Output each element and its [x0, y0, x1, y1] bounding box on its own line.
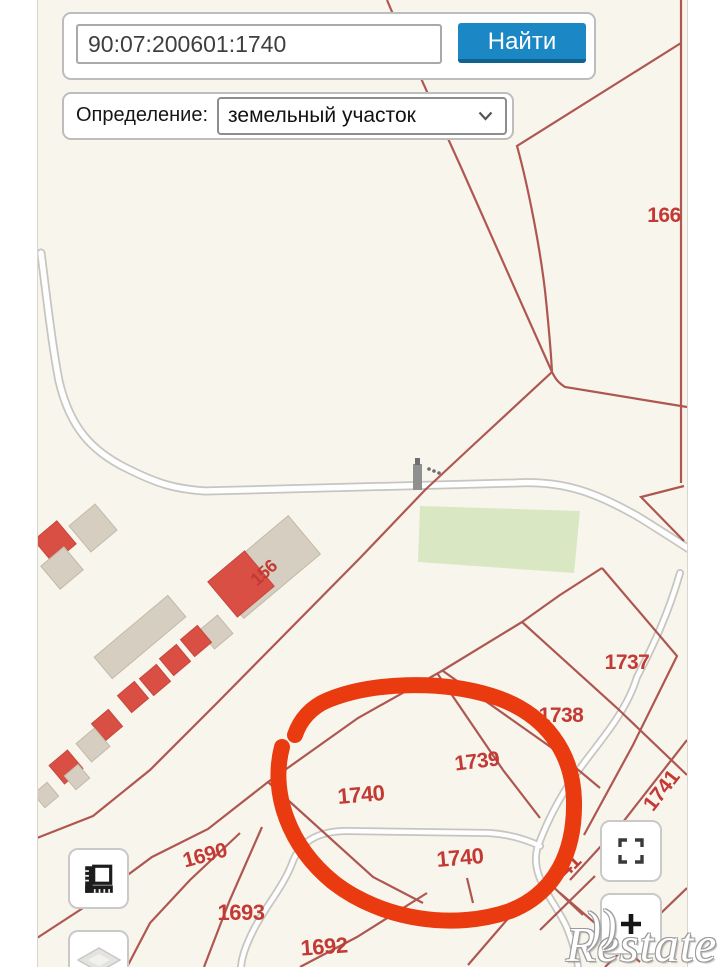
green-area — [418, 506, 580, 573]
layers-icon — [76, 946, 122, 967]
right-margin — [687, 0, 725, 967]
find-button[interactable]: Найти — [458, 23, 586, 63]
definition-selected-value: земельный участок — [219, 104, 478, 128]
plus-icon — [616, 909, 646, 939]
chevron-down-icon — [478, 111, 493, 121]
definition-panel: Определение: земельный участок — [62, 92, 514, 140]
fullscreen-icon — [616, 836, 646, 866]
left-margin — [0, 0, 38, 967]
roads — [41, 253, 689, 967]
measure-button[interactable] — [68, 848, 129, 909]
zoom-in-button[interactable] — [600, 893, 662, 955]
search-panel: Найти — [62, 12, 596, 80]
definition-select[interactable]: земельный участок — [217, 97, 507, 135]
fullscreen-button[interactable] — [600, 820, 662, 882]
layers-button[interactable] — [68, 930, 129, 967]
ruler-icon — [82, 862, 116, 896]
buildings — [33, 504, 320, 808]
cadastral-map-app: 1661561737173817391740174017414116901693… — [0, 0, 725, 967]
search-input[interactable] — [76, 24, 442, 64]
definition-label: Определение: — [76, 94, 208, 138]
